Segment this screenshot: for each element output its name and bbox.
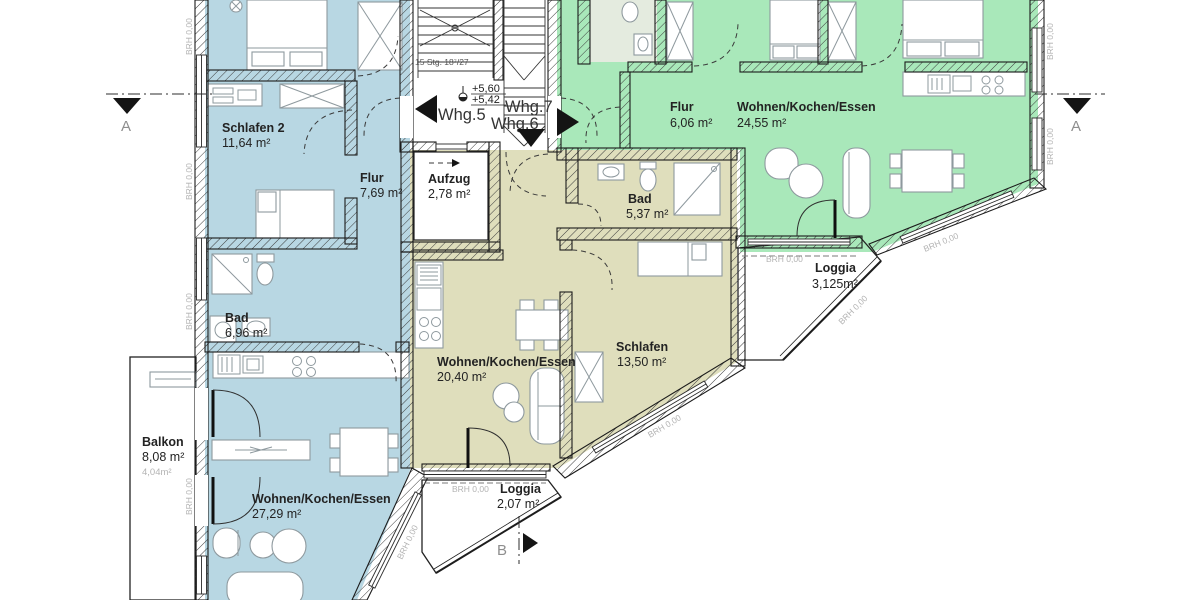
kitchen-counter-icon [903,72,1025,96]
sofa-icon [227,572,303,600]
room-label-aufzug: Aufzug [428,172,470,186]
brh-label: BRH 0,00 [184,163,194,200]
dresser-icon [208,84,262,106]
room-area-wohnen-whg5: 27,29 m² [252,507,301,521]
room-label-bad-whg5: Bad [225,311,249,325]
whg6-entrance-arrow [517,129,545,147]
elevator: Aufzug 2,78 m² [401,142,500,252]
washbasin-icon [634,34,652,55]
brh-label: BRH 0,00 [184,18,194,55]
bed-icon [770,0,820,60]
armchair-icon [504,402,524,422]
brh-label: BRH 0,00 [1045,23,1055,60]
room-label-loggia-whg6: Loggia [500,482,542,496]
brh-label: BRH 0,00 [184,293,194,330]
toilet-icon [622,2,638,22]
kitchen-counter-icon [415,262,443,348]
bed-icon [256,190,334,238]
room-area-balkon-half: 4,04m² [142,467,172,478]
room-area-balkon: 8,08 m² [142,450,184,464]
unit-label-whg5: Whg.5 [438,106,486,124]
shower-icon [674,163,720,215]
bed-icon [903,0,983,58]
room-area-flur-whg7: 6,06 m² [670,116,712,130]
sofa-icon [843,148,870,218]
room-label-wohnen-whg6: Wohnen/Kochen/Essen [437,355,576,369]
bed-icon [638,242,722,276]
room-label-loggia-whg7: Loggia [815,261,857,275]
brh-label: BRH 0,00 [184,478,194,515]
room-label-balkon: Balkon [142,435,184,449]
room-label-schlafen2: Schlafen 2 [222,121,285,135]
brh-label: BRH 0,00 [836,293,869,326]
toilet-icon [257,254,274,285]
floor-plan-svg: 15 Stg. 18⁷/27 Aufzug 2,78 m² [0,0,1200,600]
room-area-wohnen-whg6: 20,40 m² [437,370,486,384]
room-area-flur-whg5: 7,69 m² [360,186,402,200]
level-lower: +5,42 [472,94,500,106]
level-marker: +5,60 +5,42 [459,83,506,106]
room-label-flur-whg7: Flur [670,100,694,114]
wardrobe-icon [280,84,344,108]
brh-label: BRH 0,00 [766,254,803,264]
room-label-wohnen-whg5: Wohnen/Kochen/Essen [252,492,391,506]
brh-label: BRH 0,00 [1045,128,1055,165]
unit-label-whg7: Whg.7 [505,98,553,116]
room-area-schlafen-whg6: 13,50 m² [617,355,666,369]
dining-table-icon [330,428,398,476]
wardrobe-icon [358,2,402,70]
balcony-table-icon [150,372,196,387]
room-area-bad-whg6: 5,37 m² [626,207,668,221]
svg-text:B: B [497,542,507,559]
stair-note: 15 Stg. 18⁷/27 [415,57,469,67]
room-label-flur-whg5: Flur [360,171,384,185]
room-area-wohnen-whg7: 24,55 m² [737,116,786,130]
room-label-wohnen-whg7: Wohnen/Kochen/Essen [737,100,876,114]
shower-icon [212,254,252,294]
floor-plan-page: 15 Stg. 18⁷/27 Aufzug 2,78 m² [0,0,1200,600]
svg-text:A: A [1071,118,1081,135]
bed-icon [247,0,327,70]
wardrobe-icon [828,2,856,60]
kitchen-counter-icon [213,352,409,378]
wardrobe-icon [575,352,603,402]
room-area-bad-whg5: 6,96 m² [225,326,267,340]
room-area-loggia-whg7: 3,125m² [812,277,858,291]
sofa-icon [530,368,564,444]
room-area-schlafen2: 11,64 m² [222,136,270,150]
svg-text:A: A [121,118,131,135]
whg5-entrance-arrow [415,95,437,123]
lamp-icon [230,0,242,12]
room-label-schlafen-whg6: Schlafen [616,340,668,354]
wardrobe-icon [667,2,693,60]
sideboard-icon [212,440,310,460]
armchair-icon [213,528,240,558]
room-area-aufzug: 2,78 m² [428,187,470,201]
room-label-bad-whg6: Bad [628,192,652,206]
washbasin-icon [598,164,624,180]
armchair-icon [272,529,306,563]
brh-label: BRH 0,00 [452,484,489,494]
side-table-icon [789,164,823,198]
toilet-icon [640,162,656,191]
room-area-loggia-whg6: 2,07 m² [497,497,539,511]
